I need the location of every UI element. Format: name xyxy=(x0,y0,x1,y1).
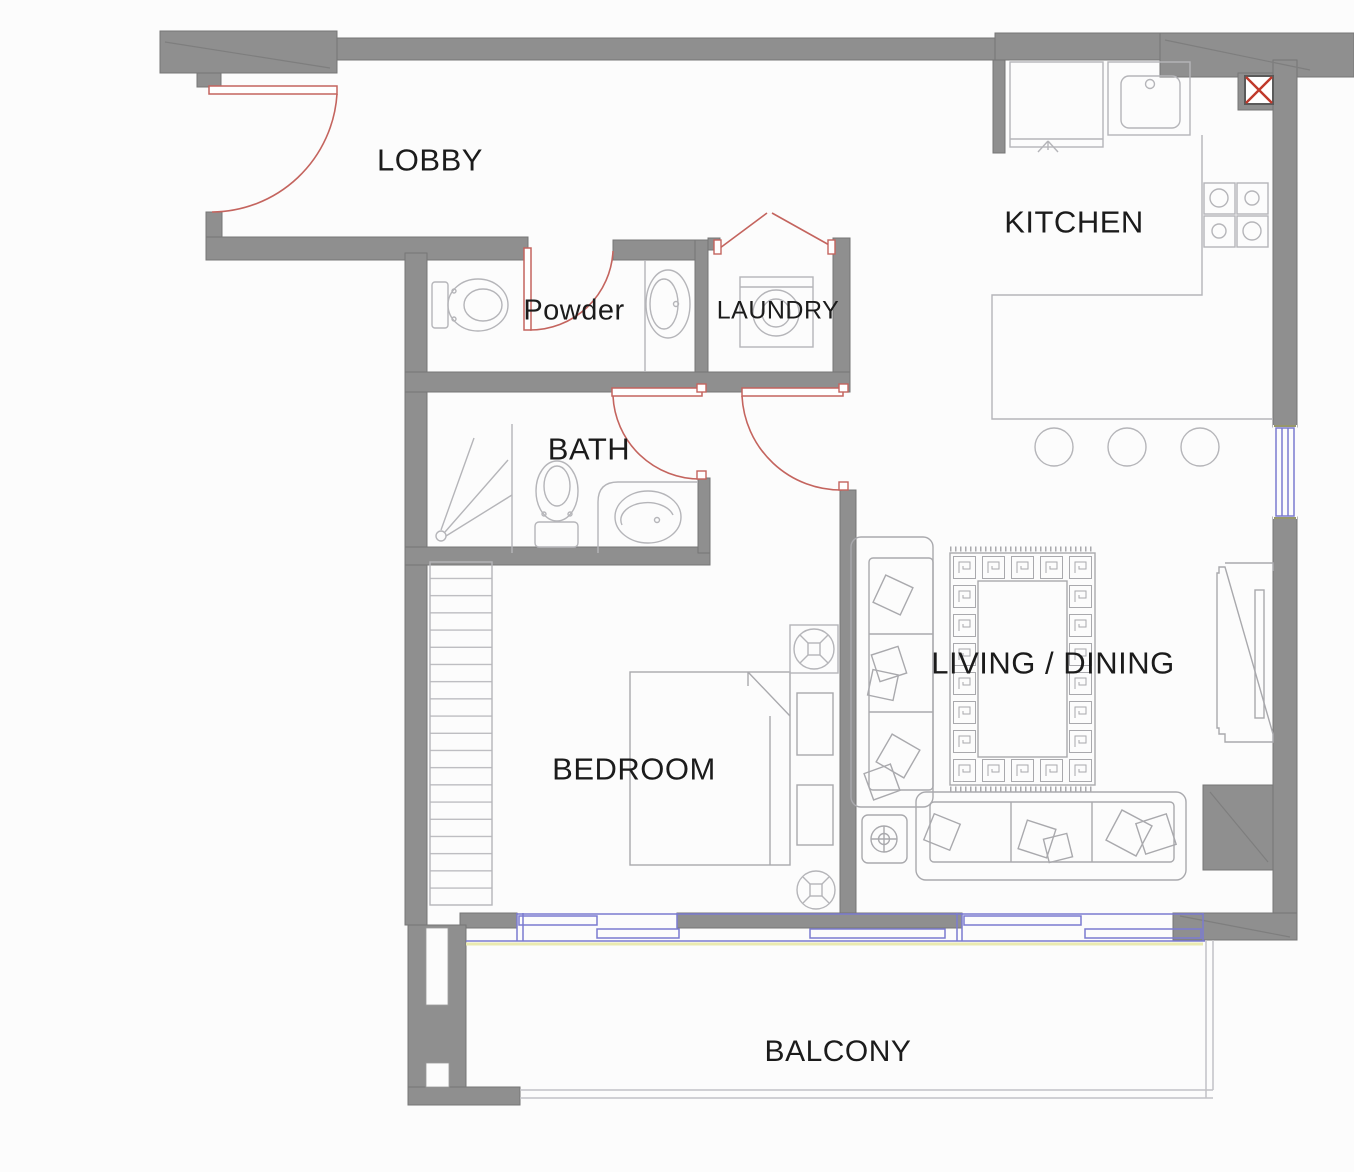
nightstand-icons xyxy=(797,693,833,845)
floor-plan-drawing xyxy=(0,0,1354,1172)
room-label-kitchen: KITCHEN xyxy=(1004,207,1144,238)
powder-toilet-icon xyxy=(432,279,508,331)
floor-plan: LOBBY KITCHEN Powder LAUNDRY BATH BEDROO… xyxy=(0,0,1354,1172)
room-label-balcony: BALCONY xyxy=(765,1037,912,1067)
room-label-bath: BATH xyxy=(548,434,630,465)
shower-icon xyxy=(436,424,512,553)
balcony-railing xyxy=(520,940,1213,1098)
stove-icon xyxy=(1204,183,1268,247)
room-label-lobby: LOBBY xyxy=(377,145,483,176)
bedroom-door-icon xyxy=(742,384,848,490)
room-label-laundry: LAUNDRY xyxy=(717,299,840,324)
ceiling-fan-icon-bottom xyxy=(797,871,835,909)
fridge-icon xyxy=(1010,62,1103,152)
room-label-living-dining: LIVING / DINING xyxy=(931,648,1174,679)
room-label-bedroom: BEDROOM xyxy=(552,754,716,785)
room-label-powder: Powder xyxy=(523,297,624,326)
entry-door-icon xyxy=(209,86,337,212)
bar-stool-icons xyxy=(1035,428,1219,466)
kitchen-counter-outline xyxy=(992,135,1273,419)
bath-sink-icon xyxy=(598,482,698,553)
ceiling-fan-icon-top xyxy=(790,625,838,673)
wardrobe-icon xyxy=(430,562,492,905)
tv-console-icon xyxy=(1217,563,1273,742)
right-wall-window-icon xyxy=(1273,425,1297,519)
laundry-bifold-door-icon xyxy=(714,213,835,254)
powder-sink-icon xyxy=(645,260,690,372)
sofa-bottom-icon xyxy=(916,792,1186,880)
duct-shaft-icon xyxy=(1245,76,1273,104)
bath-toilet-icon xyxy=(535,461,578,547)
side-table-icon xyxy=(862,815,907,863)
sofa-left-icon xyxy=(851,537,933,807)
